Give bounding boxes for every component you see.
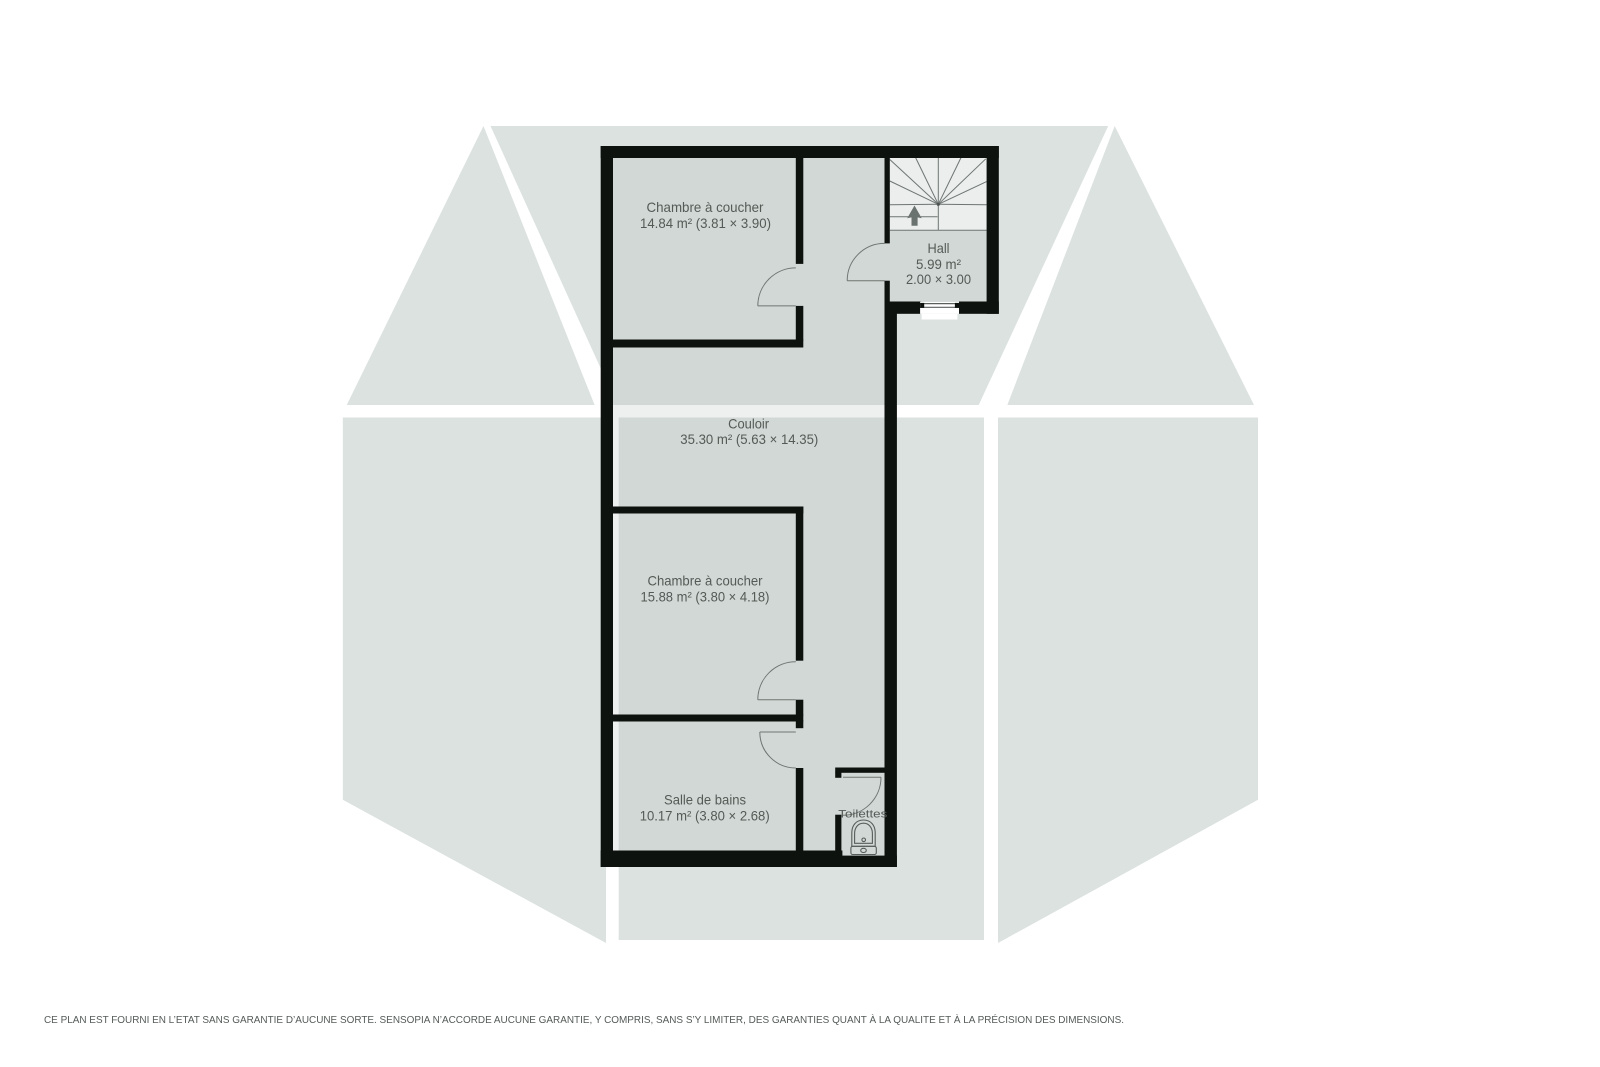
svg-text:2.00 × 3.00: 2.00 × 3.00 xyxy=(906,271,971,287)
svg-text:Chambre à coucher: Chambre à coucher xyxy=(648,572,763,588)
svg-text:Chambre à coucher: Chambre à coucher xyxy=(647,199,764,215)
svg-text:15.88 m² (3.80 × 4.18): 15.88 m² (3.80 × 4.18) xyxy=(641,589,770,605)
svg-text:Toilettes: Toilettes xyxy=(838,808,888,820)
svg-text:Couloir: Couloir xyxy=(728,416,769,432)
svg-text:35.30 m² (5.63 × 14.35): 35.30 m² (5.63 × 14.35) xyxy=(680,431,818,447)
svg-text:Salle de bains: Salle de bains xyxy=(664,792,746,808)
svg-text:5.99 m²: 5.99 m² xyxy=(916,256,961,272)
svg-text:14.84 m² (3.81 × 3.90): 14.84 m² (3.81 × 3.90) xyxy=(640,215,771,231)
svg-text:Hall: Hall xyxy=(928,240,950,256)
svg-text:10.17 m² (3.80 × 2.68): 10.17 m² (3.80 × 2.68) xyxy=(640,808,770,824)
svg-text:CE PLAN EST FOURNI EN L’ETAT S: CE PLAN EST FOURNI EN L’ETAT SANS GARANT… xyxy=(44,1013,1124,1026)
